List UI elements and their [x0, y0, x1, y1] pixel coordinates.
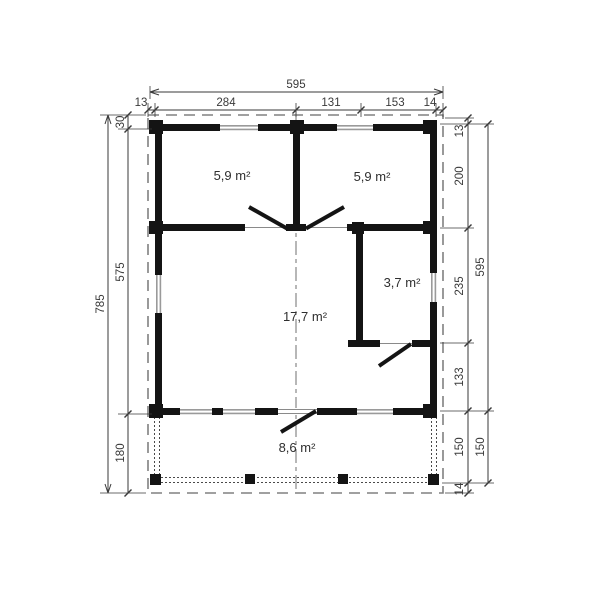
wall-post-top-right — [423, 120, 437, 134]
dim-label-right-235: 235 — [454, 276, 466, 295]
terrace-post — [245, 474, 255, 484]
wall-exterior-left — [155, 124, 162, 415]
wall-post-middle-left — [149, 221, 163, 234]
doors — [245, 207, 412, 432]
dim-label-right-14: 14 — [454, 482, 466, 495]
floor-plan-page: 5,9 m² 5,9 m² 3,7 m² 17,7 m² 8,6 m² 595 … — [0, 0, 600, 600]
dim-label-left-30: 30 — [115, 116, 127, 129]
dim-label-right-133: 133 — [454, 367, 466, 386]
terrace-post — [150, 474, 161, 485]
window-bottom-right — [357, 408, 393, 415]
window-top-left-room — [220, 124, 258, 131]
dim-label-left-575: 575 — [115, 262, 127, 281]
room-label-top-left: 5,9 m² — [214, 168, 252, 183]
wall-post-top-middle — [290, 120, 304, 134]
wall-room-side-bottom-right — [412, 340, 432, 347]
wall-interior-middle-left — [160, 224, 245, 231]
wall-room-side-left — [356, 228, 363, 342]
terrace-post — [338, 474, 348, 484]
room-label-side: 3,7 m² — [384, 275, 422, 290]
dim-label-top-total: 595 — [286, 79, 305, 91]
walls — [149, 120, 437, 418]
dim-top-labels: 595 13 284 131 153 14 — [135, 79, 437, 109]
wall-post-middle-right — [423, 221, 437, 234]
dim-left-labels: 785 30 575 180 — [95, 116, 127, 463]
wall-room-side-bottom-left — [348, 340, 380, 347]
dim-label-top-14: 14 — [424, 97, 437, 109]
wall-interior-vertical-top — [293, 128, 300, 228]
window-top-right-room — [337, 124, 373, 131]
dim-label-right-595: 595 — [475, 257, 487, 276]
wall-post-top-left — [149, 120, 163, 134]
door-main-entrance — [278, 408, 317, 432]
room-label-top-right: 5,9 m² — [354, 169, 392, 184]
window-left-wall — [155, 275, 162, 313]
wall-exterior-right — [430, 124, 437, 415]
room-label-terrace: 8,6 m² — [279, 440, 317, 455]
wall-post-middle-room — [352, 222, 364, 234]
dim-left — [100, 112, 152, 497]
door-middle-right — [306, 207, 347, 231]
dim-right-labels: 13 200 235 133 150 14 595 150 — [454, 125, 487, 496]
door-leaf — [379, 344, 411, 366]
dim-label-right-200: 200 — [454, 166, 466, 185]
dim-label-right-150-outer: 150 — [475, 437, 487, 456]
dim-label-left-total: 785 — [95, 294, 107, 313]
door-middle-left — [245, 207, 287, 231]
terrace-post — [428, 474, 439, 485]
dim-label-top-153: 153 — [385, 97, 404, 109]
dim-label-top-131: 131 — [321, 97, 340, 109]
window-right-wall — [430, 273, 437, 302]
wall-post-bottom-left — [149, 404, 163, 418]
terrace-posts — [150, 474, 439, 485]
dim-label-left-180: 180 — [115, 443, 127, 462]
dim-label-top-13: 13 — [135, 97, 148, 109]
dim-label-right-150-inner: 150 — [454, 437, 466, 456]
room-label-main: 17,7 m² — [283, 309, 328, 324]
wall-post-bottom-right — [423, 404, 437, 418]
door-room-side — [379, 340, 412, 366]
dim-label-top-284: 284 — [216, 97, 236, 109]
floor-plan-svg: 5,9 m² 5,9 m² 3,7 m² 17,7 m² 8,6 m² 595 … — [0, 0, 600, 600]
dim-label-right-13: 13 — [454, 125, 466, 138]
